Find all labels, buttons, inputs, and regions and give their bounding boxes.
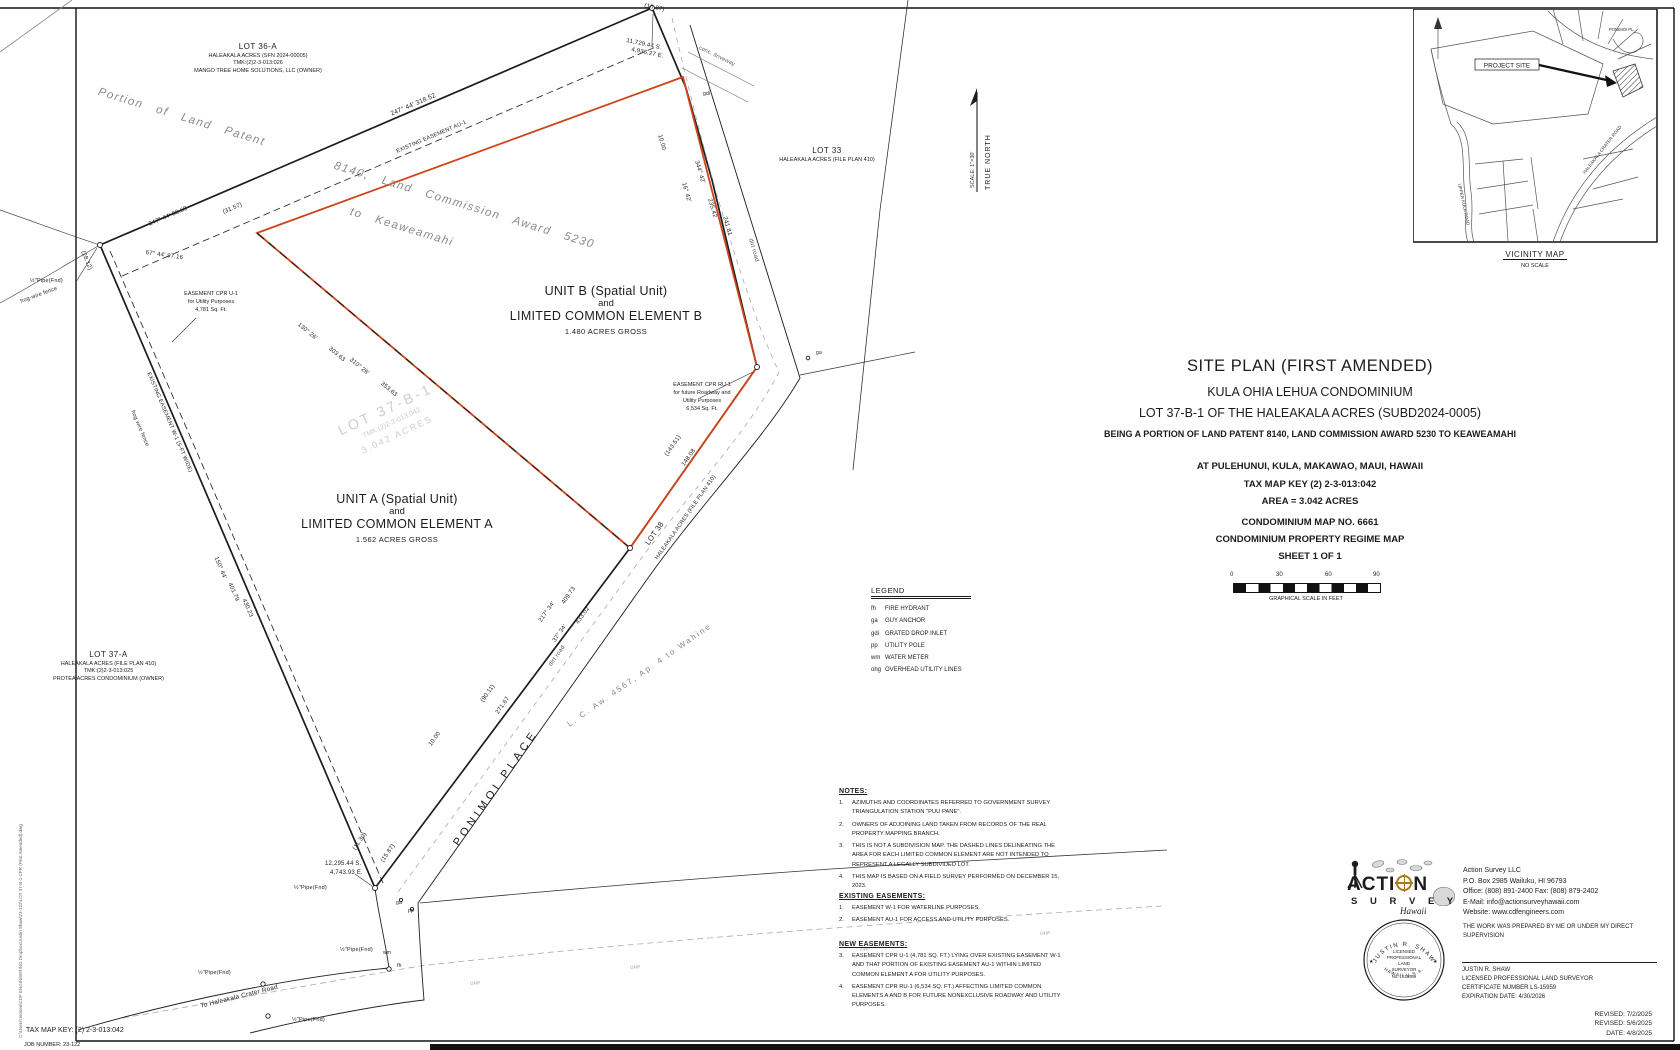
list-item-text: AZIMUTHS AND COORDINATES REFERRED TO GOV… [852,799,1063,818]
scale-tick-30: 30 [1276,572,1283,578]
marker-ohp-2: OHP [630,965,641,970]
legend-items: fhFIRE HYDRANTgaGUY ANCHORgdiGRATED DROP… [871,603,1021,677]
lot38-label-1: LOT 38 [644,521,665,547]
vicinity-subtitle: NO SCALE [1475,263,1595,269]
list-item: 1.EASEMENT W-1 FOR WATERLINE PURPOSES. [839,904,1063,913]
list-item: gdiGRATED DROP INLET [871,628,1021,640]
list-item: gaGUY ANCHOR [871,615,1021,627]
coord-south-2: 4,743.93 E. [330,870,363,876]
firm-address: P.O. Box 2985 Wailuku, HI 96793 [1463,877,1678,888]
list-item: 1.AZIMUTHS AND COORDINATES REFERRED TO G… [839,799,1063,818]
lot38-label-2: HALEAKALA ACRES (FILE PLAN 410) [655,475,718,561]
surveyor-signature-block: JUSTIN R. SHAW LICENSED PROFESSIONAL LAN… [1462,962,1657,1002]
list-item-text: EASEMENT CPR U-1 (4,781 SQ. FT.) LYING O… [852,952,1069,980]
dim-south-1: (11.30) [352,832,368,852]
list-item-text: THIS MAP IS BASED ON A FIELD SURVEY PERF… [852,873,1063,892]
sheet-title: SITE PLAN (FIRST AMENDED) [1080,357,1540,376]
scale-note: SCALE: 1"=30' [970,152,976,188]
new-easements-title: NEW EASEMENTS: [839,941,1069,948]
list-item-text: OWNERS OF ADJOINING LAND TAKEN FROM RECO… [852,821,1063,840]
dim-topleft-4: 67° 44' 97.16 [145,250,183,261]
road-to-haleakala: To Haleakala Crater Road [200,985,279,1011]
logo-text-2: N [1413,874,1428,895]
list-item: ohgOVERHEAD UTILITY LINES [871,664,1021,676]
dim-road-2: 409.73 [561,586,577,605]
condo-map-line: CONDOMINIUM MAP NO. 6661 [1080,517,1540,528]
list-item-key: 1. [839,904,852,913]
fence-label-2: hog wire fence [129,410,149,448]
existing-easements-title: EXISTING EASEMENTS: [839,893,1063,900]
surveyor-seal: JUSTIN R. SHAW HAWAII U.S.A. LICENSED PR… [1360,916,1448,1004]
list-item: 2.OWNERS OF ADJOINING LAND TAKEN FROM RE… [839,821,1063,840]
pipe-found-4: ½"Pipe(Fnd) [292,1018,325,1024]
new-easements-section: NEW EASEMENTS: 3.EASEMENT CPR U-1 (4,781… [839,941,1069,1014]
dim-east-2: 344° 42' [693,160,705,184]
surveyor-certificate: CERTIFICATE NUMBER LS-15959 [1462,984,1657,993]
list-item-text: EASEMENT CPR RU-1 (6,534 SQ. FT.) AFFECT… [852,983,1069,1011]
notes-title: NOTES: [839,788,1063,795]
tmk-line: TAX MAP KEY (2) 2-3-013:042 [1080,479,1540,490]
list-item-text: THIS IS NOT A SUBDIVISION MAP. THE DASHE… [852,842,1063,870]
marker-ga-1: ga [396,901,402,906]
pipe-found-2: ½"Pipe(Fnd) [294,886,327,892]
list-item: 2.EASEMENT AU-1 FOR ACCESS AND UTILITY P… [839,916,1063,925]
dim-topleft-1: 247° 44' 318.52 [390,93,437,118]
notes-section: NOTES: 1.AZIMUTHS AND COORDINATES REFERR… [839,788,1063,894]
seal-line-1: LICENSED [1393,949,1415,954]
location-line: AT PULEHUNUI, KULA, MAKAWAO, MAUI, HAWAI… [1080,461,1540,472]
project-site-label: PROJECT SITE [1484,63,1531,70]
marker-wm: wm [383,951,391,956]
revision-line: DATE: 4/8/2025 [1450,1029,1652,1038]
firm-info: Action Survey LLC P.O. Box 2985 Wailuku,… [1463,866,1678,919]
job-number: JOB NUMBER: 23-122 [24,1042,80,1048]
list-item-text: WATER METER [885,652,929,664]
lot-line: LOT 37-B-1 OF THE HALEAKALA ACRES (SUBD2… [1080,406,1540,420]
pipe-found-3: ½"Pipe(Fnd) [198,971,231,977]
fence-label-1: hog-wire fence [20,287,58,305]
list-item: fhFIRE HYDRANT [871,603,1021,615]
firm-website: Website: www.cdfengineers.com [1463,908,1678,919]
list-item: 4.THIS MAP IS BASED ON A FIELD SURVEY PE… [839,873,1063,892]
dim-diag-3: 310° 26' [348,357,370,377]
dim-east-1: 10.00 [656,134,666,151]
list-item-key: pp [871,640,885,652]
dim-se-2: 148.08 [681,448,697,467]
list-item: 3.THIS IS NOT A SUBDIVISION MAP. THE DAS… [839,842,1063,870]
bottom-bar [430,1044,1680,1050]
firm-name: Action Survey LLC [1463,866,1678,877]
firm-phone: Office: (808) 891-2400 Fax: (808) 879-24… [1463,887,1678,898]
dim-topleft-3: (31.57) [222,202,243,216]
dim-se-1: (143.51) [664,434,683,457]
tax-map-key: TAX MAP KEY: (2) 2-3-013:042 [26,1027,124,1034]
existing-easements-items: 1.EASEMENT W-1 FOR WATERLINE PURPOSES.2.… [839,904,1063,926]
dim-west-4: 430.23 [240,598,253,618]
legend-title: LEGEND [871,586,971,599]
dim-west-2: 150° 44' [212,556,227,580]
notes-items: 1.AZIMUTHS AND COORDINATES REFERRED TO G… [839,799,1063,891]
list-item-key: ga [871,615,885,627]
vicinity-road-ponimoi: PONIMOI PL. [1609,27,1635,32]
list-item-key: 2. [839,916,852,925]
marker-ohp-4: OHP [1040,931,1051,936]
true-north-label: TRUE NORTH [985,134,992,190]
firm-email: E-Mail: info@actionsurveyhawaii.com [1463,898,1678,909]
logo-script-hawaii: Hawaii [1400,906,1427,916]
dim-west-1: (28.12) [79,250,93,271]
driveway-label: conc. driveway [698,46,736,68]
dim-east-5: 241.81 [721,216,732,236]
marker-pp-1: pp [408,909,414,914]
area-line: AREA = 3.042 ACRES [1080,496,1540,507]
supervision-note: THE WORK WAS PREPARED BY ME OR UNDER MY … [1463,923,1663,941]
dim-road-3: 37° 34' [552,624,568,644]
list-item-key: fh [871,603,885,615]
seal-star-right: ★ [1433,959,1438,965]
vicinity-map: PROJECT SITE UPPER KULA ROAD HALEAKALA C… [1413,9,1658,243]
list-item: 4.EASEMENT CPR RU-1 (6,534 SQ. FT.) AFFE… [839,983,1069,1011]
list-item-text: EASEMENT W-1 FOR WATERLINE PURPOSES. [852,904,980,913]
list-item: 3.EASEMENT CPR U-1 (4,781 SQ. FT.) LYING… [839,952,1069,980]
revision-line: REVISED: 5/6/2025 [1450,1019,1652,1028]
road-label-dirt-1: dirt road [548,644,567,667]
surveyor-expiration: EXPIRATION DATE: 4/30/2026 [1462,993,1657,1002]
dim-diag-1: 130° 26' [296,322,318,342]
coord-south-1: 12,295.44 S. [325,861,361,867]
list-item-key: 3. [839,842,852,870]
marker-ohp-1: OHP [470,981,481,986]
road-label-dirt-2: dirt road [747,238,759,263]
list-item-text: UTILITY POLE [885,640,925,652]
regime-map-line: CONDOMINIUM PROPERTY REGIME MAP [1080,534,1540,545]
list-item-key: 3. [839,952,852,980]
dim-apex: (10.07) [644,3,665,13]
logo-text-1: ACTI [1347,874,1395,895]
scale-tick-90: 90 [1373,572,1380,578]
scale-caption: GRAPHICAL SCALE IN FEET [1233,596,1379,602]
scale-bar-segments [1233,583,1381,593]
firm-logo: ACTIN [1347,874,1428,896]
scale-tick-0: 0 [1230,572,1233,578]
crosshair-icon [1396,875,1412,891]
dim-road-4: 433.02 [575,606,591,625]
dim-road-1: 217° 34' [538,601,556,624]
list-item-text: EASEMENT AU-1 FOR ACCESS AND UTILITY PUR… [852,916,1009,925]
list-item: wmWATER METER [871,652,1021,664]
marker-fh: fh [397,964,402,969]
dim-south-2: (15.87) [380,843,397,863]
pipe-found-5: ½"Pipe(Fnd) [340,948,373,954]
marker-gdi: gdi [703,92,710,97]
plat-sheet: LOT 37-B-1 TMK:(2)2-3-013:042 3.042 ACRE… [0,0,1680,1050]
list-item: ppUTILITY POLE [871,640,1021,652]
dim-diag-2: 303.63 [327,346,346,363]
easement-w1-label: EXISTING EASEMENT W-1 (5-FT WIDE) [145,372,192,474]
scale-tick-60: 60 [1325,572,1332,578]
list-item-key: wm [871,652,885,664]
dim-road-6: 271.67 [495,696,511,715]
list-item-key: 1. [839,799,852,818]
easement-au1-label: EXISTING EASEMENT AU-1 [396,120,468,155]
lca-4567-label: L. C. Aw. 4567, Ap. 4 to Wahine [566,622,713,728]
surveyor-name: JUSTIN R. SHAW [1462,966,1657,975]
dim-east-3: 16° 42' [680,182,691,203]
revision-line: REVISED: 7/2/2025 [1450,1010,1652,1019]
list-item-key: gdi [871,628,885,640]
new-easements-items: 3.EASEMENT CPR U-1 (4,781 SQ. FT.) LYING… [839,952,1069,1011]
seal-line-4: SURVEYOR [1392,967,1417,972]
sheet-count-line: SHEET 1 OF 1 [1080,551,1540,562]
list-item-text: GUY ANCHOR [885,615,925,627]
seal-star-left: ★ [1369,959,1374,965]
dim-east-4: 235.42 [706,198,717,218]
legend: LEGEND fhFIRE HYDRANTgaGUY ANCHORgdiGRAT… [871,586,1021,677]
seal-number: No. LS15959 [1392,974,1417,979]
existing-easements-section: EXISTING EASEMENTS: 1.EASEMENT W-1 FOR W… [839,893,1063,929]
vicinity-title: VICINITY MAP [1503,250,1566,260]
dim-road-7: 10.00 [428,731,442,748]
list-item-key: 2. [839,821,852,840]
revision-block: REVISED: 7/2/2025REVISED: 5/6/2025DATE: … [1450,1010,1652,1038]
dim-west-3: 401.79 [226,582,239,602]
patent-line: BEING A PORTION OF LAND PATENT 8140, LAN… [1080,429,1540,439]
condo-name: KULA OHIA LEHUA CONDOMINIUM [1080,385,1540,399]
list-item-key: 4. [839,983,852,1011]
dim-diag-4: 353.63 [379,381,398,398]
surveyor-title: LICENSED PROFESSIONAL LAND SURVEYOR [1462,975,1657,984]
seal-line-3: LAND [1398,961,1410,966]
list-item-text: GRATED DROP INLET [885,628,947,640]
seal-line-2: PROFESSIONAL [1387,955,1422,960]
road-ponimoi-label: PONIMOI PLACE [452,728,541,848]
vicinity-caption: VICINITY MAP NO SCALE [1475,244,1595,269]
list-item-key: 4. [839,873,852,892]
marker-ga-2: ga [816,351,822,356]
list-item-key: ohg [871,664,885,676]
list-item-text: OVERHEAD UTILITY LINES [885,664,962,676]
list-item-text: FIRE HYDRANT [885,603,929,615]
file-path: C:\Users\Jensen\CDF ENGINEERING Dropbox\… [18,824,23,1038]
pipe-found-1: ½"Pipe(Fnd) [30,279,63,285]
dim-road-5: (90.11) [480,684,496,704]
dim-topleft-2: 247° 44' 88.69 [148,206,188,228]
